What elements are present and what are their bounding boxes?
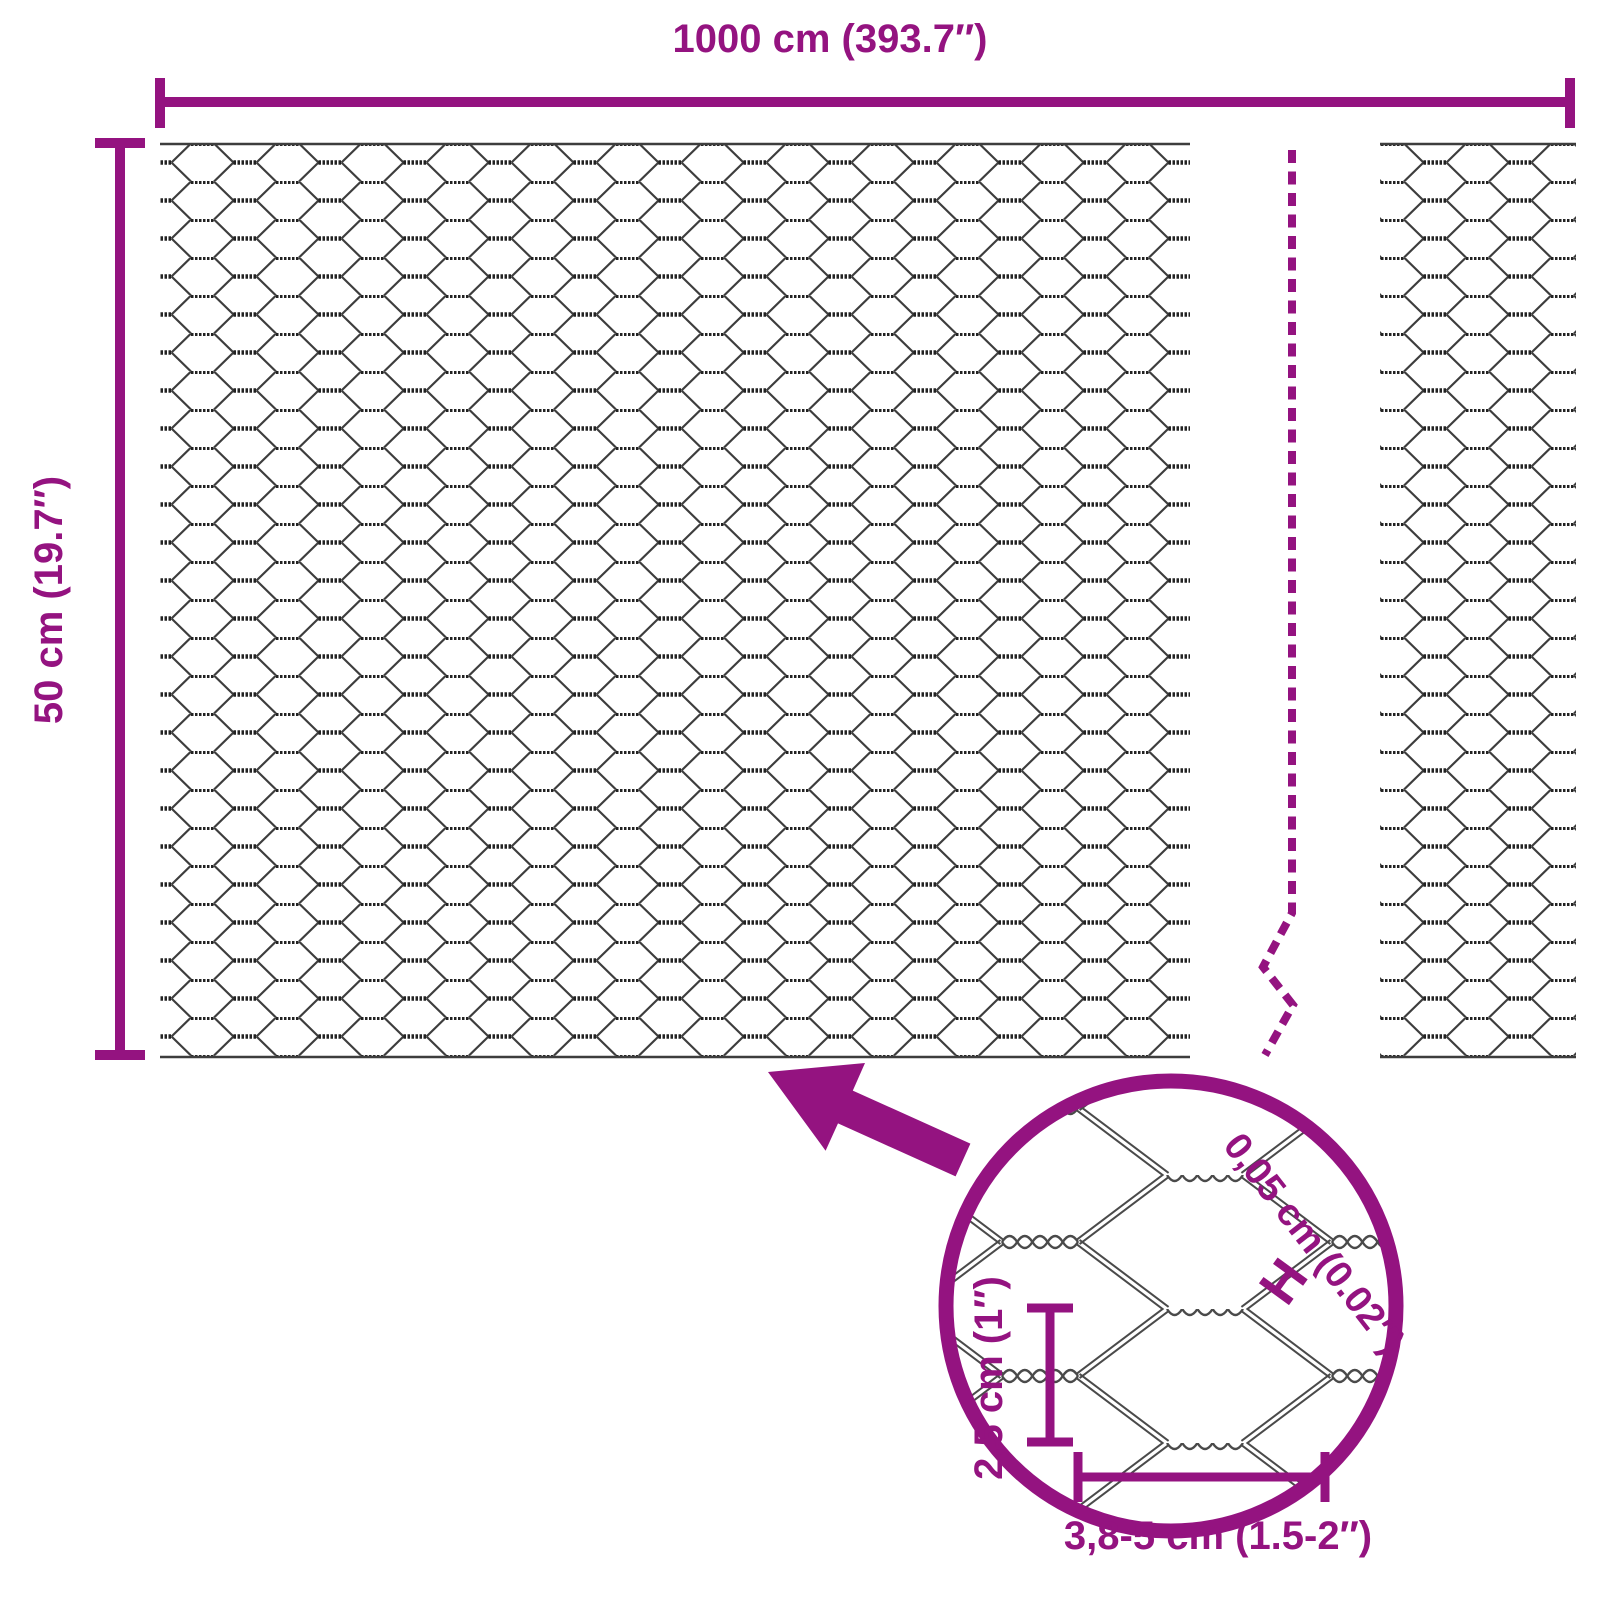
width-dimension-line xyxy=(160,78,1570,128)
product-dimension-diagram: 1000 cm (393.7″) 50 cm (19.7″) 0,05 cm (… xyxy=(0,0,1600,1600)
width-dimension-label: 1000 cm (393.7″) xyxy=(673,17,988,61)
mesh-width-label: 3,8-5 cm (1.5-2″) xyxy=(1064,1514,1372,1558)
height-dimension-label: 50 cm (19.7″) xyxy=(27,476,71,724)
height-dimension-line xyxy=(95,143,145,1055)
mesh-panel xyxy=(160,143,1190,1058)
diagram-canvas: 1000 cm (393.7″) 50 cm (19.7″) 0,05 cm (… xyxy=(0,0,1600,1600)
zoom-arrow-icon xyxy=(768,1063,970,1176)
detail-circle: 0,05 cm (0.02″) H 2,5 cm (1″) 3,8-5 cm (… xyxy=(944,1079,1413,1558)
break-line-icon xyxy=(1263,150,1293,1055)
mesh-strip-continuation xyxy=(1380,143,1576,1058)
mesh-height-label: 2,5 cm (1″) xyxy=(967,1276,1011,1480)
